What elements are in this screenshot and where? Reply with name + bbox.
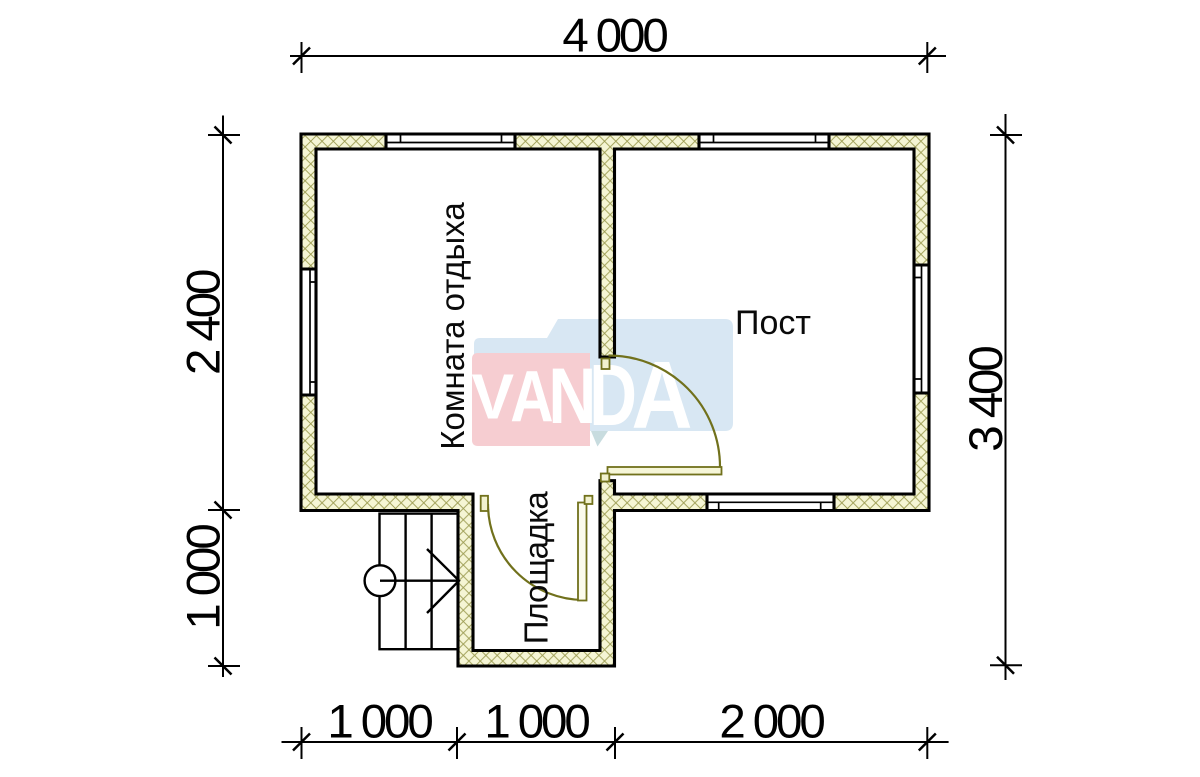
svg-text:3 400: 3 400 <box>960 347 1013 452</box>
svg-text:Площадка: Площадка <box>518 491 555 645</box>
svg-text:2 000: 2 000 <box>719 696 824 749</box>
svg-text:A: A <box>510 357 553 437</box>
svg-text:D: D <box>589 347 637 444</box>
svg-text:1 000: 1 000 <box>327 696 432 749</box>
svg-text:1 000: 1 000 <box>178 525 231 630</box>
svg-text:V: V <box>471 361 514 433</box>
svg-text:Пост: Пост <box>735 304 811 342</box>
svg-text:A: A <box>632 342 693 449</box>
svg-text:Комната отдыха: Комната отдыха <box>434 202 471 450</box>
svg-text:2 400: 2 400 <box>178 270 231 375</box>
svg-text:1 000: 1 000 <box>484 696 589 749</box>
svg-text:4 000: 4 000 <box>562 10 667 63</box>
